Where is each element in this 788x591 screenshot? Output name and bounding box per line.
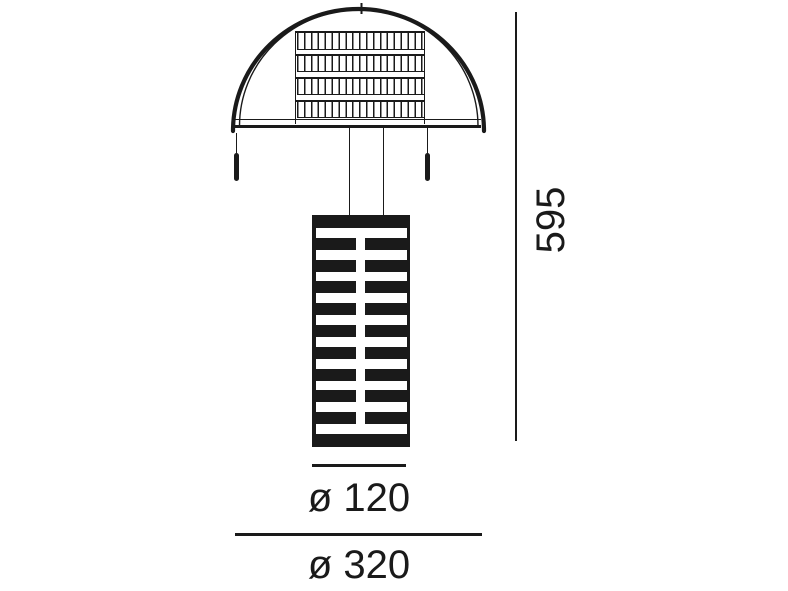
stem-left-line xyxy=(349,127,351,216)
body-stripe-slot xyxy=(316,250,407,260)
shade-grid xyxy=(295,31,425,124)
left-hang-wire xyxy=(236,133,238,155)
body-stripe-slot xyxy=(316,424,407,434)
shade-slat-row xyxy=(296,77,424,100)
shade-slats xyxy=(297,102,424,119)
height-dimension-label: 595 xyxy=(521,190,581,250)
right-hang-peg xyxy=(425,153,431,181)
body-stripe-slot xyxy=(316,272,407,282)
shade-slat-row xyxy=(296,31,424,54)
shade-slats xyxy=(297,79,424,96)
brim-line-thin xyxy=(233,119,481,120)
lamp-dimension-diagram: 595 ø 120 ø 320 xyxy=(0,0,788,591)
height-dimension-line xyxy=(515,12,518,441)
body-stripe-slot xyxy=(316,337,407,347)
body-stripe-slot xyxy=(316,402,407,412)
shade-slats xyxy=(297,56,424,73)
shade-slat-row xyxy=(296,54,424,77)
shade-slats xyxy=(297,33,424,50)
body-stripe-slot xyxy=(316,228,407,238)
large-diameter-label: ø 320 xyxy=(279,545,439,585)
small-diameter-line xyxy=(312,464,406,467)
body-stripe-slot xyxy=(316,315,407,325)
large-diameter-line xyxy=(235,533,482,536)
body-stripe-slot xyxy=(316,359,407,369)
right-hang-wire xyxy=(427,127,429,155)
brim-line-thick xyxy=(233,125,481,128)
body-stripe-slot xyxy=(316,381,407,391)
body-stripe-slot xyxy=(316,293,407,303)
lamp-body xyxy=(312,215,410,447)
left-hang-peg xyxy=(234,153,240,181)
small-diameter-label: ø 120 xyxy=(279,478,439,518)
stem-right-line xyxy=(383,127,385,216)
